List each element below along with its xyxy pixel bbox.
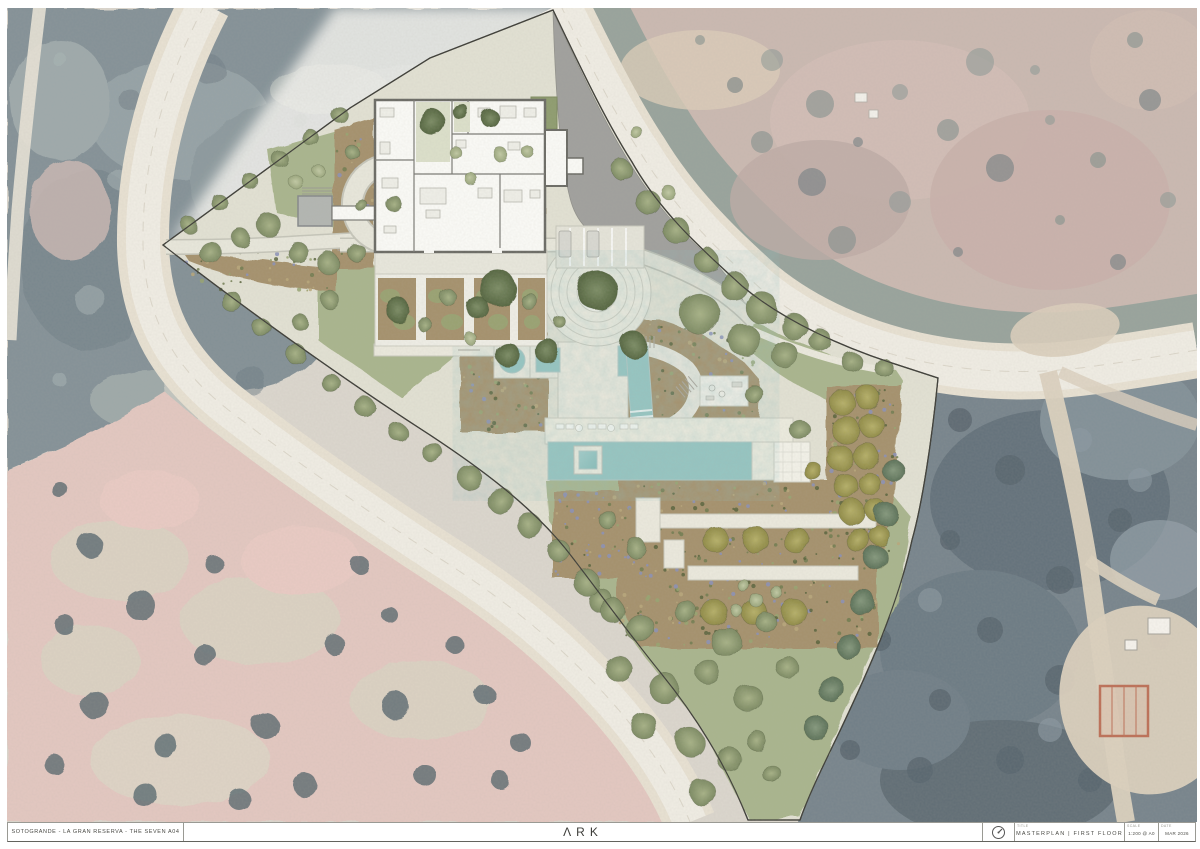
scale-value: 1:200 @ A0 [1128,831,1155,836]
masterplan-canvas [0,0,1200,849]
project-title-cell: SOTOGRANDE - LA GRAN RESERVA - THE SEVEN… [8,823,184,841]
logo-cell: ΛRK [184,823,983,841]
date-cell: DATE MAR 2026 [1159,823,1195,841]
ark-logo: ΛRK [563,825,603,839]
title-block: SOTOGRANDE - LA GRAN RESERVA - THE SEVEN… [7,822,1196,842]
date-label: DATE [1161,824,1172,828]
project-title: SOTOGRANDE - LA GRAN RESERVA - THE SEVEN… [11,829,179,835]
scale-cell: SCALE 1:200 @ A0 [1125,823,1159,841]
drawing-title-cell: TITLE MASTERPLAN | FIRST FLOOR [1015,823,1125,841]
masterplan-sheet: SOTOGRANDE - LA GRAN RESERVA - THE SEVEN… [0,0,1200,849]
photo-grain [7,8,1197,822]
date-value: MAR 2026 [1165,831,1189,836]
drawing-title: MASTERPLAN | FIRST FLOOR [1016,831,1123,837]
drawing-title-label: TITLE [1017,824,1029,828]
scale-label: SCALE [1127,824,1140,828]
compass-cell [983,823,1015,841]
compass-north-icon [991,825,1006,840]
